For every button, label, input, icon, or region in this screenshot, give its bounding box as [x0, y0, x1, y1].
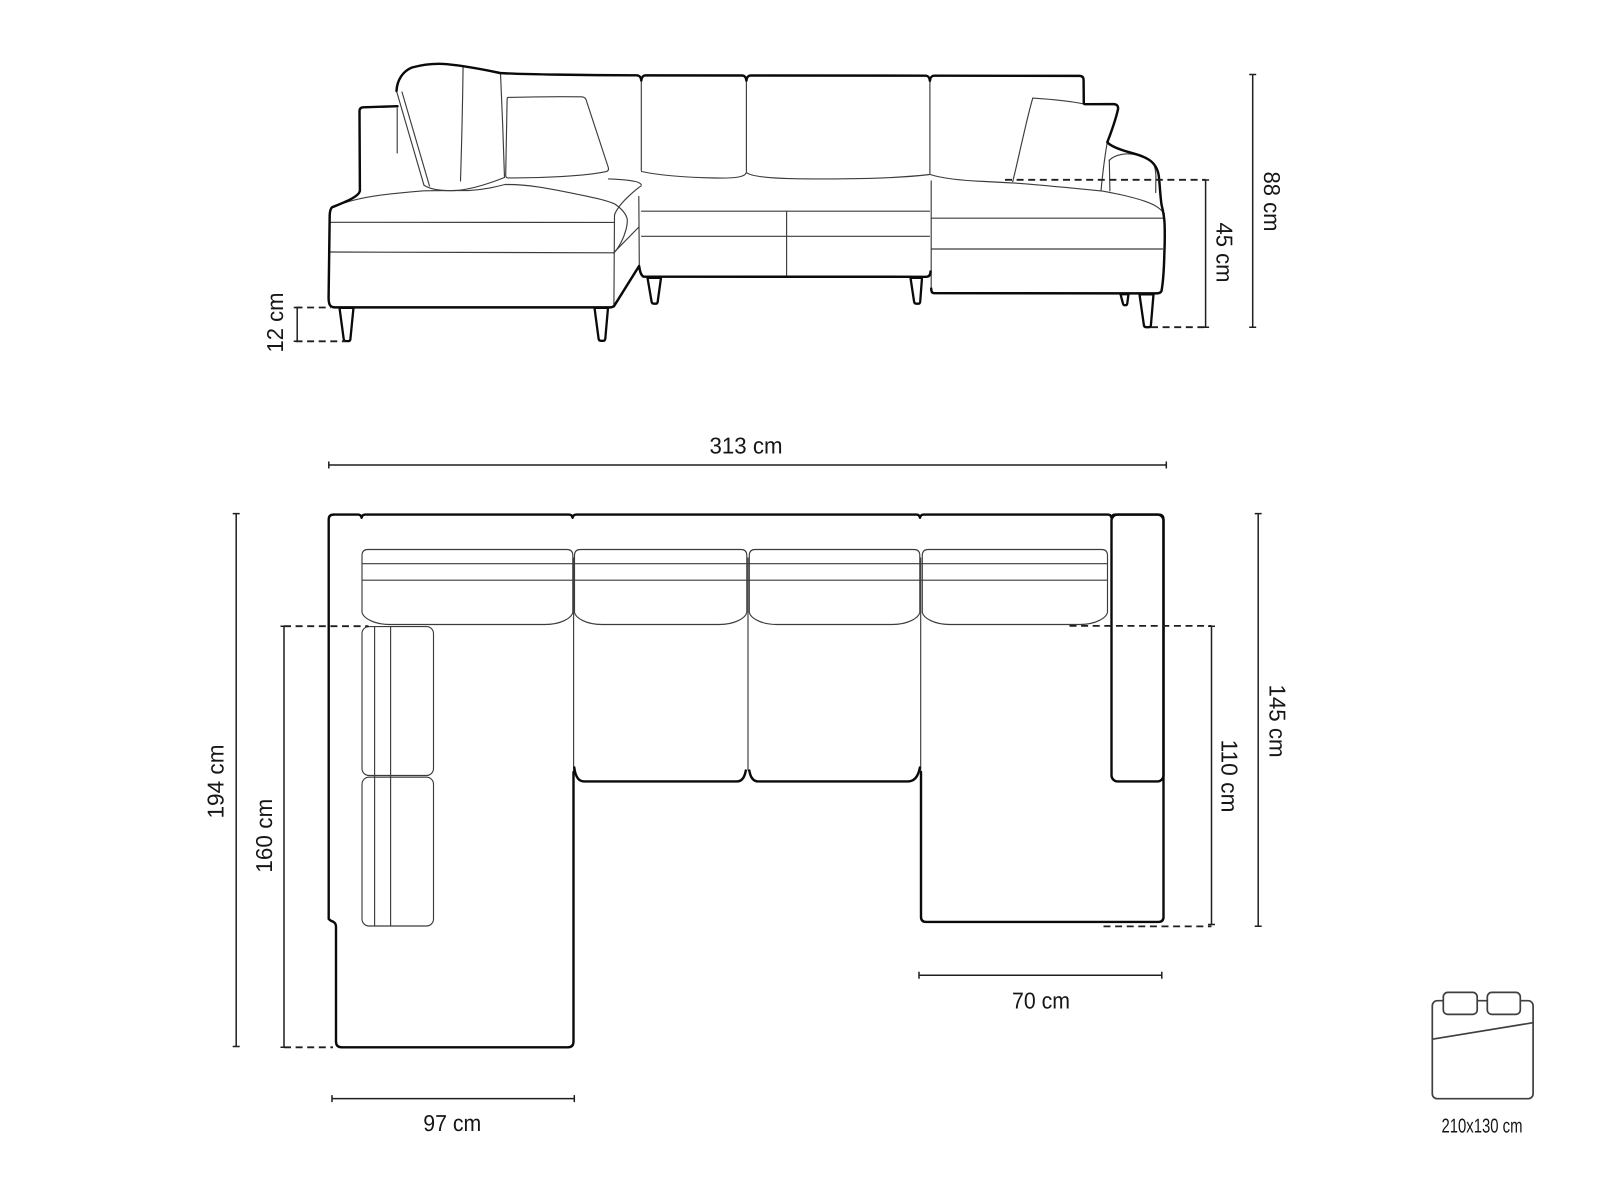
svg-text:70 cm: 70 cm	[1012, 988, 1070, 1014]
svg-text:313 cm: 313 cm	[710, 433, 783, 459]
svg-text:97 cm: 97 cm	[423, 1110, 481, 1136]
svg-text:45 cm: 45 cm	[1212, 223, 1238, 283]
svg-text:88 cm: 88 cm	[1259, 172, 1285, 232]
svg-text:160 cm: 160 cm	[251, 799, 277, 873]
svg-text:110 cm: 110 cm	[1217, 740, 1243, 813]
svg-text:210x130 cm: 210x130 cm	[1442, 1116, 1523, 1138]
svg-text:12 cm: 12 cm	[262, 293, 288, 353]
svg-text:145 cm: 145 cm	[1265, 685, 1291, 758]
svg-text:194 cm: 194 cm	[203, 745, 229, 819]
